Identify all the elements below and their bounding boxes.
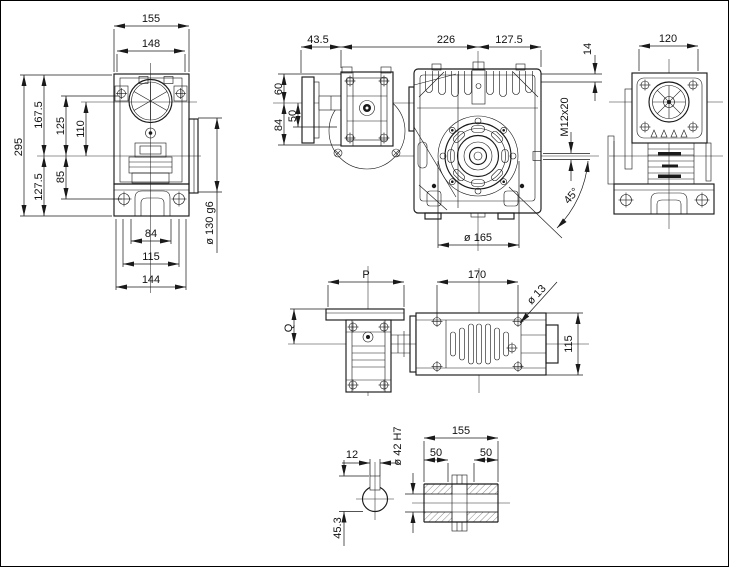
dim-height-center-bottom: 127.5 — [33, 173, 45, 201]
dim-bore-diameter: ø 42 H7 — [392, 426, 404, 465]
side-view-left: 155 148 295 167.5 125 110 85 127.5 84 11… — [13, 13, 222, 293]
dim-flange-diameter: ø 165 — [464, 232, 492, 244]
side-view-right: 120 — [608, 33, 723, 229]
dim-foot-inner: 84 — [145, 228, 157, 240]
drawing-sheet: 155 148 295 167.5 125 110 85 127.5 84 11… — [0, 0, 729, 567]
dim-50: 50 — [287, 110, 299, 122]
dimension-lines — [639, 46, 698, 71]
dim-motor-flange-width: P — [362, 269, 369, 281]
thread-callout: M12x20 — [559, 97, 571, 136]
dim-14: 14 — [582, 43, 594, 55]
dimension-lines — [20, 26, 222, 290]
front-view: 43.5 226 127.5 60 50 84 14 M12x20 ø 165 … — [273, 34, 602, 251]
dim-foot-outer: 144 — [142, 274, 160, 286]
dim-width: 120 — [659, 33, 677, 45]
dim-125: 125 — [55, 117, 67, 135]
dim-bore-depth-left: 50 — [430, 447, 442, 459]
top-view: P 170 ø 13 Q 115 — [283, 266, 589, 396]
dim-keyway-width: 12 — [346, 449, 358, 461]
gearbox-dimension-drawing: 155 148 295 167.5 125 110 85 127.5 84 11… — [1, 1, 728, 566]
dim-keyway-depth: 45.3 — [332, 517, 344, 538]
dim-bore-depth-right: 50 — [480, 447, 492, 459]
dim-85: 85 — [55, 171, 67, 183]
bolt-icon — [175, 88, 186, 99]
dim-shaft-length: 155 — [452, 425, 470, 437]
dim-body-depth: 115 — [563, 335, 575, 353]
dim-output-spigot: ø 130 g6 — [204, 201, 216, 244]
dim-60: 60 — [273, 83, 285, 95]
dim-length: 226 — [437, 34, 455, 46]
dim-foot-mid: 115 — [142, 251, 160, 263]
dim-q: Q — [283, 323, 295, 332]
dim-110: 110 — [75, 120, 87, 138]
dim-input-offset: 43.5 — [307, 34, 328, 46]
dim-angle: 45° — [562, 186, 582, 206]
hollow-shaft-detail: 12 155 50 50 ø 42 H7 45.3 — [332, 425, 510, 546]
dim-height-total: 295 — [13, 138, 25, 156]
dim-height-center-top: 167.5 — [33, 101, 45, 129]
dim-foot-hole-spacing: 170 — [468, 269, 486, 281]
bolt-icon — [116, 88, 127, 99]
dim-84: 84 — [273, 119, 285, 131]
foot-bolt-icon — [695, 193, 710, 208]
foot-bolt-icon — [172, 192, 187, 207]
dim-half-width: 127.5 — [495, 34, 523, 46]
foot-bolt-icon — [619, 193, 634, 208]
dim-width-top: 155 — [142, 13, 160, 25]
dim-width-flange: 148 — [142, 38, 160, 50]
spoke-icon — [134, 82, 167, 120]
